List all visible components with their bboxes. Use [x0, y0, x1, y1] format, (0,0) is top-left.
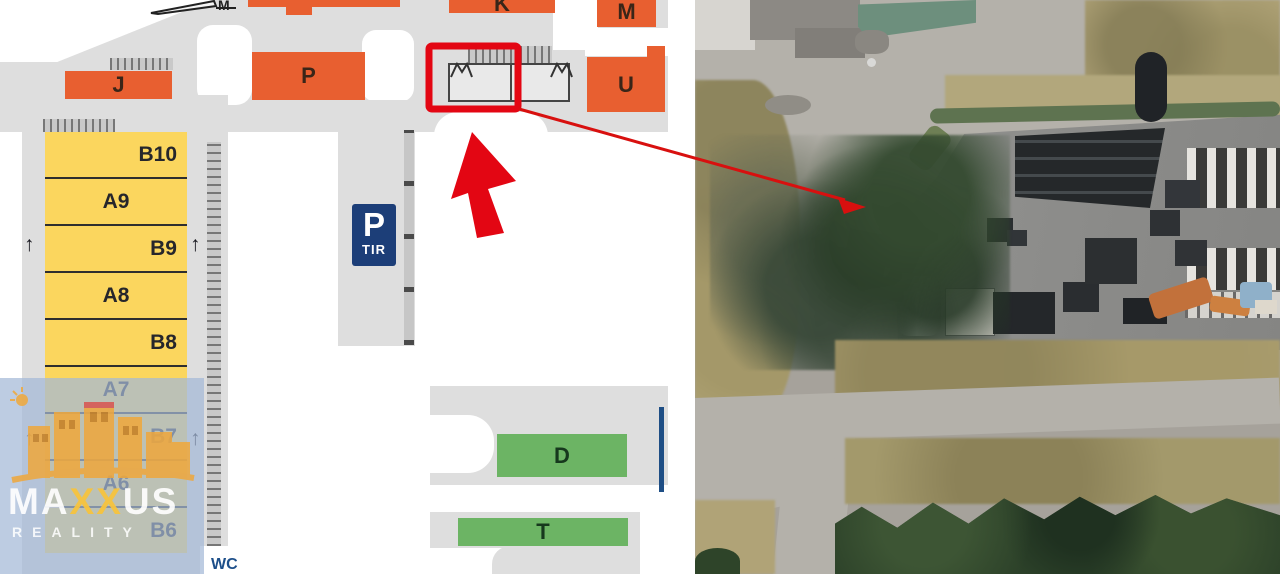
- building-strip-top: [248, 0, 400, 7]
- building-D-label: D: [554, 443, 570, 469]
- aerial-dark-equipment: [1085, 238, 1137, 284]
- plan-road-4: [430, 415, 494, 473]
- blue-marker-bar: [659, 407, 664, 492]
- dock-strip-unit-right: [520, 46, 552, 63]
- aerial-dark-equipment: [1007, 230, 1027, 246]
- building-strip-tab: [286, 0, 312, 15]
- aerial-white-pallet: [1255, 300, 1277, 314]
- plan-road-2: [362, 30, 414, 102]
- building-K: K: [449, 0, 555, 13]
- unit-label: B8: [150, 331, 177, 355]
- parking-sign-p: P: [363, 207, 385, 243]
- building-P-label: P: [301, 63, 316, 89]
- aerial-road-marking: [867, 58, 876, 67]
- aerial-dark-equipment: [1175, 240, 1207, 266]
- building-U: U: [587, 57, 665, 112]
- aerial-building-1: [695, 0, 755, 50]
- unit-row: A8: [45, 273, 187, 320]
- unit-label: A9: [103, 190, 130, 214]
- aerial-tree-cluster: [710, 135, 1010, 370]
- watermark-subtitle: REALITY: [12, 524, 142, 540]
- aerial-photo: [695, 0, 1280, 574]
- dock-strip-unit-left: [468, 49, 515, 63]
- watermark: MAXXUS REALITY: [0, 378, 204, 574]
- building-T: T: [458, 518, 628, 546]
- aerial-tree-corner: [695, 548, 740, 574]
- aerial-dark-equipment: [1063, 282, 1099, 312]
- aerial-dark-equipment: [1165, 180, 1200, 208]
- direction-arrow-icon: ↑: [190, 234, 201, 255]
- unit-row: B9: [45, 226, 187, 273]
- dock-strip-column: [207, 142, 221, 546]
- building-T-label: T: [536, 519, 549, 545]
- unit-label: B9: [150, 237, 177, 261]
- unit-row: B8: [45, 320, 187, 367]
- building-D: D: [497, 434, 627, 477]
- aerial-dark-equipment: [1150, 210, 1180, 236]
- parking-sign-tir: TIR: [362, 243, 386, 257]
- building-M: M: [597, 0, 656, 27]
- dock-strip-j: [110, 58, 173, 70]
- watermark-skyline-icon: [8, 384, 198, 484]
- aerial-road-shadow-1: [765, 95, 811, 115]
- plan-road-1: [197, 25, 252, 105]
- watermark-brand: MAXXUS: [8, 481, 178, 523]
- wc-label: WC: [211, 556, 238, 574]
- unit-row: B10: [45, 132, 187, 179]
- dock-strip-b10: [43, 119, 115, 132]
- building-K-label: K: [494, 0, 510, 13]
- dock-strip-ptir: [404, 130, 414, 345]
- unit-label: A8: [103, 284, 130, 308]
- building-M-label: M: [617, 0, 635, 25]
- highlighted-unit-divider: [510, 63, 512, 102]
- brand-part: US: [123, 481, 178, 522]
- aerial-road-shadow-2: [855, 30, 889, 54]
- building-J: J: [65, 71, 172, 99]
- building-P: P: [252, 52, 365, 100]
- aerial-black-van: [1135, 52, 1167, 122]
- building-J-label: J: [112, 72, 124, 98]
- building-U-label: U: [618, 72, 634, 98]
- plan-road-3: [434, 112, 548, 182]
- listing-image: J P K M U B10 A9 B9 A8 B8 A7 B7 A6 B6 D …: [0, 0, 1280, 574]
- aerial-rack-row-1: [1187, 148, 1280, 208]
- aerial-container-stacks: [1015, 128, 1165, 208]
- plan-ground-bottom: [492, 546, 640, 574]
- brand-part: XX: [70, 481, 123, 522]
- parking-tir-sign: P TIR: [352, 204, 396, 266]
- brand-part: MA: [8, 481, 70, 522]
- unit-label: B10: [138, 143, 177, 167]
- aerial-grass-band: [845, 438, 1280, 504]
- direction-arrow-icon: ↑: [24, 234, 35, 255]
- highlighted-unit: [448, 63, 570, 102]
- unit-row: A9: [45, 179, 187, 226]
